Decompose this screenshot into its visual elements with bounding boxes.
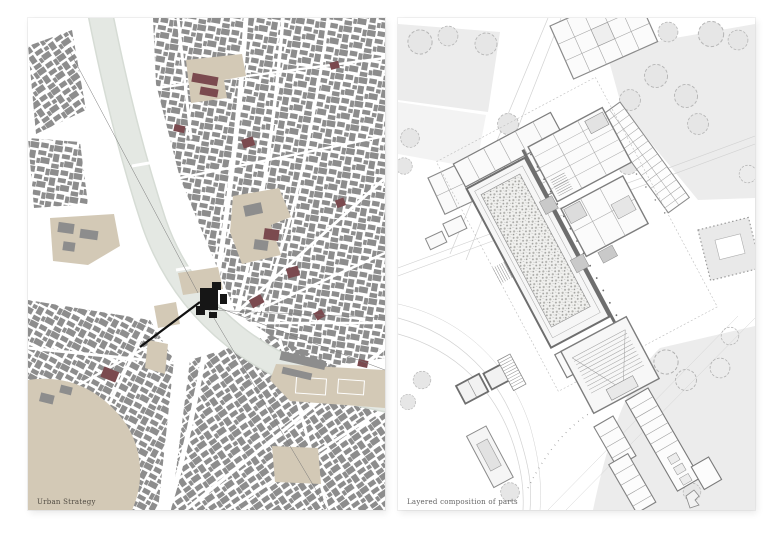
city-fabric-west [28,138,88,208]
site-plan-panel: Layered composition of parts [398,18,755,510]
urban-strategy-map [28,18,385,510]
panel-caption-left: Urban Strategy [37,499,96,506]
urban-strategy-panel: Urban Strategy [28,18,385,510]
site-plan-drawing [398,18,755,510]
panel-caption-right: Layered composition of parts [407,499,518,506]
presentation-spread: Urban Strategy [0,0,780,551]
